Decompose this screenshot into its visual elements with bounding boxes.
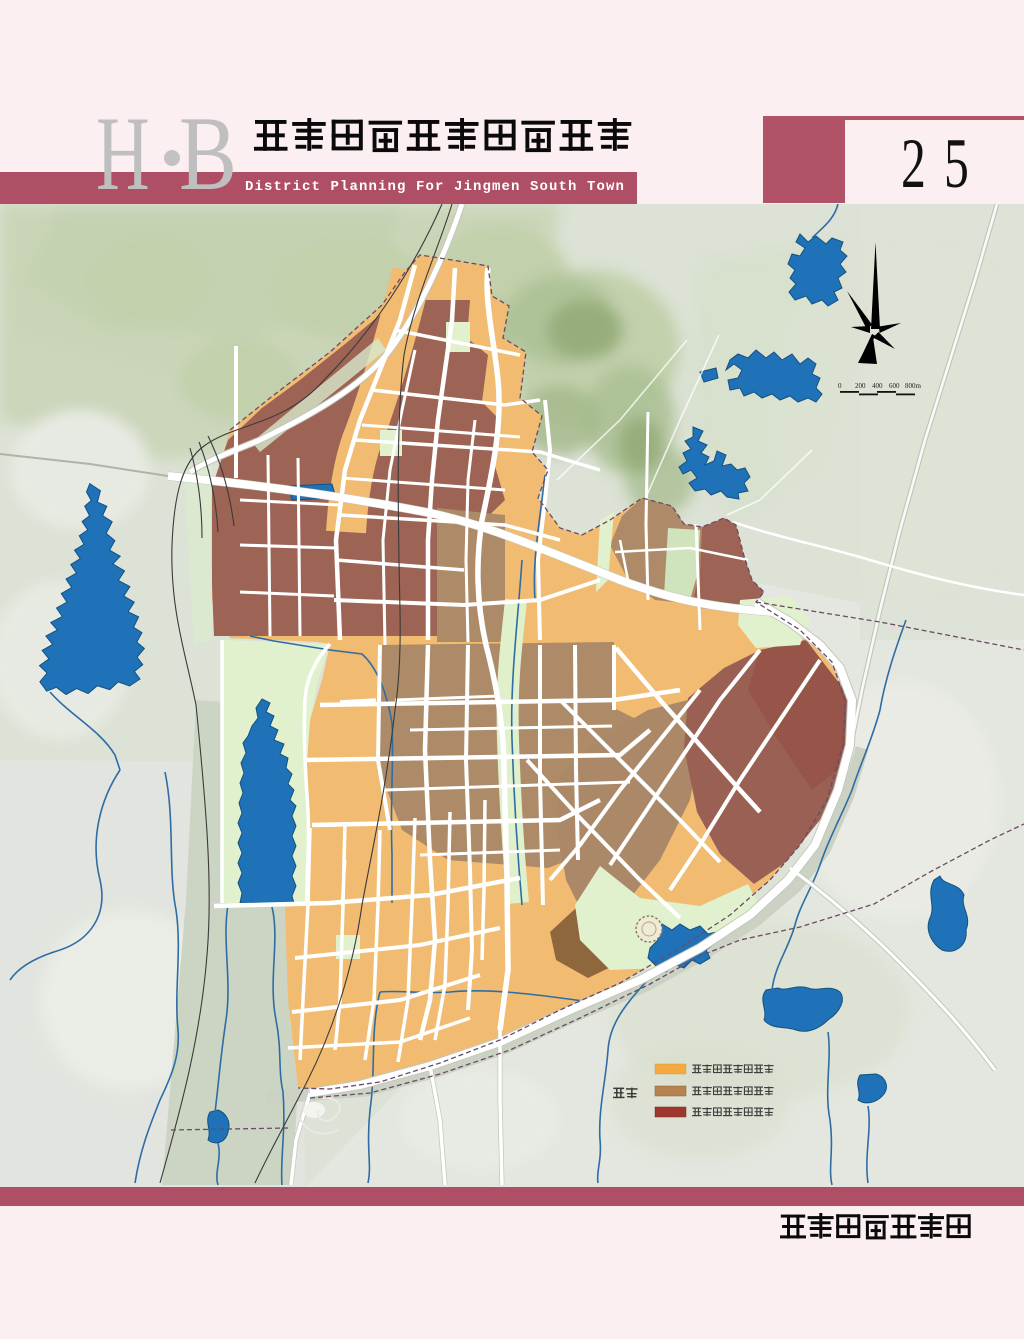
svg-text:200: 200 <box>855 382 866 390</box>
svg-text:0: 0 <box>838 382 842 390</box>
svg-text:800m: 800m <box>905 382 922 390</box>
svg-text:400: 400 <box>872 382 883 390</box>
svg-text:600: 600 <box>889 382 900 390</box>
